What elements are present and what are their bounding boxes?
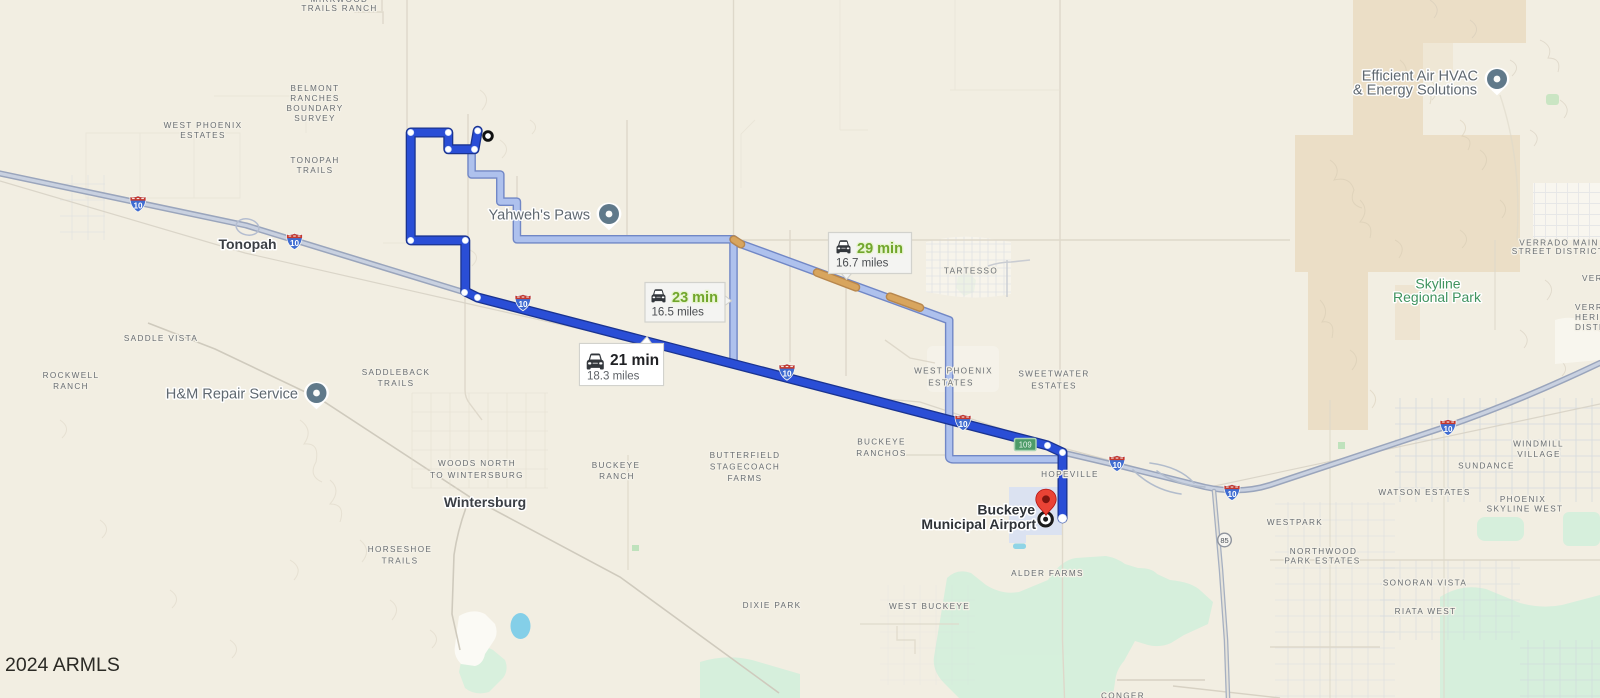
svg-text:Yahweh's Paws: Yahweh's Paws bbox=[489, 208, 590, 224]
svg-text:Municipal Airport: Municipal Airport bbox=[921, 516, 1036, 532]
svg-text:PHOENIX: PHOENIX bbox=[1500, 495, 1546, 504]
svg-text:SONORAN VISTA: SONORAN VISTA bbox=[1383, 579, 1467, 588]
svg-text:WOODS NORTH: WOODS NORTH bbox=[438, 459, 516, 468]
svg-text:WEST PHOENIX: WEST PHOENIX bbox=[164, 121, 243, 130]
svg-text:BUCKEYE: BUCKEYE bbox=[592, 461, 641, 470]
svg-text:HOPEVILLE: HOPEVILLE bbox=[1041, 470, 1099, 479]
svg-text:PARK ESTATES: PARK ESTATES bbox=[1284, 557, 1360, 566]
svg-text:H&M Repair Service: H&M Repair Service bbox=[166, 387, 298, 403]
svg-text:DIXIE PARK: DIXIE PARK bbox=[743, 601, 802, 610]
svg-text:HERITA: HERITA bbox=[1575, 313, 1600, 322]
svg-text:WATSON ESTATES: WATSON ESTATES bbox=[1378, 488, 1470, 497]
svg-text:21 min: 21 min bbox=[610, 352, 659, 369]
svg-text:BELMONT: BELMONT bbox=[290, 84, 339, 93]
svg-text:BUCKEYE: BUCKEYE bbox=[857, 438, 906, 447]
svg-text:SURVEY: SURVEY bbox=[294, 114, 336, 123]
svg-text:ESTATES: ESTATES bbox=[180, 131, 226, 140]
svg-text:ALDER FARMS: ALDER FARMS bbox=[1011, 569, 1084, 578]
svg-text:16.7 miles: 16.7 miles bbox=[836, 258, 889, 270]
svg-text:STAGECOACH: STAGECOACH bbox=[710, 463, 780, 472]
svg-text:SADDLEBACK: SADDLEBACK bbox=[362, 368, 431, 377]
svg-text:BOUNDARY: BOUNDARY bbox=[286, 104, 343, 113]
svg-text:RIATA WEST: RIATA WEST bbox=[1395, 607, 1457, 616]
svg-text:ESTATES: ESTATES bbox=[1031, 382, 1077, 391]
svg-text:WEST BUCKEYE: WEST BUCKEYE bbox=[889, 602, 970, 611]
svg-text:SUNDANCE: SUNDANCE bbox=[1458, 462, 1515, 471]
svg-text:SWEETWATER: SWEETWATER bbox=[1018, 370, 1089, 379]
svg-text:16.5 miles: 16.5 miles bbox=[652, 307, 705, 319]
svg-text:85: 85 bbox=[1220, 536, 1228, 545]
svg-text:TRAILS: TRAILS bbox=[297, 166, 334, 175]
svg-text:ESTATES: ESTATES bbox=[928, 379, 974, 388]
svg-text:HORSESHOE: HORSESHOE bbox=[368, 545, 432, 554]
svg-text:Wintersburg: Wintersburg bbox=[444, 494, 526, 510]
svg-text:RANCHES: RANCHES bbox=[290, 94, 339, 103]
svg-text:23 min: 23 min bbox=[672, 290, 718, 306]
svg-text:TRAILS: TRAILS bbox=[378, 379, 415, 388]
svg-text:VERRAD: VERRAD bbox=[1575, 303, 1600, 312]
svg-text:SADDLE VISTA: SADDLE VISTA bbox=[124, 334, 198, 343]
svg-text:VILLAGE: VILLAGE bbox=[1517, 450, 1561, 459]
svg-text:FARMS: FARMS bbox=[728, 474, 763, 483]
svg-text:Tonopah: Tonopah bbox=[218, 236, 276, 252]
svg-text:VERRA: VERRA bbox=[1582, 274, 1600, 283]
svg-text:TRAILS: TRAILS bbox=[382, 557, 419, 566]
svg-text:WINDMILL: WINDMILL bbox=[1513, 440, 1564, 449]
svg-text:RANCH: RANCH bbox=[599, 472, 635, 481]
svg-text:2024 ARMLS: 2024 ARMLS bbox=[5, 654, 120, 676]
svg-text:18.3 miles: 18.3 miles bbox=[587, 371, 640, 383]
svg-text:109: 109 bbox=[1019, 440, 1032, 449]
svg-text:NORTHWOOD: NORTHWOOD bbox=[1290, 547, 1358, 556]
svg-text:RANCHOS: RANCHOS bbox=[856, 449, 906, 458]
svg-text:TO WINTERSBURG: TO WINTERSBURG bbox=[430, 471, 524, 480]
svg-text:TONOPAH: TONOPAH bbox=[290, 156, 339, 165]
svg-text:DISTRI: DISTRI bbox=[1575, 323, 1600, 332]
svg-text:CONGER: CONGER bbox=[1101, 692, 1145, 698]
svg-text:BUTTERFIELD: BUTTERFIELD bbox=[710, 451, 781, 460]
svg-text:RANCH: RANCH bbox=[53, 382, 89, 391]
svg-text:WESTPARK: WESTPARK bbox=[1267, 518, 1323, 527]
svg-text:Regional Park: Regional Park bbox=[1393, 289, 1482, 305]
svg-text:SKYLINE WEST: SKYLINE WEST bbox=[1487, 505, 1564, 514]
svg-text:TARTESSO: TARTESSO bbox=[944, 267, 998, 276]
svg-text:STREET DISTRICT: STREET DISTRICT bbox=[1512, 247, 1600, 256]
svg-text:TRAILS RANCH: TRAILS RANCH bbox=[301, 4, 377, 13]
svg-text:WEST PHOENIX: WEST PHOENIX bbox=[914, 367, 993, 376]
svg-text:& Energy Solutions: & Energy Solutions bbox=[1353, 83, 1477, 99]
svg-text:29 min: 29 min bbox=[857, 241, 903, 257]
svg-text:ROCKWELL: ROCKWELL bbox=[43, 371, 100, 380]
